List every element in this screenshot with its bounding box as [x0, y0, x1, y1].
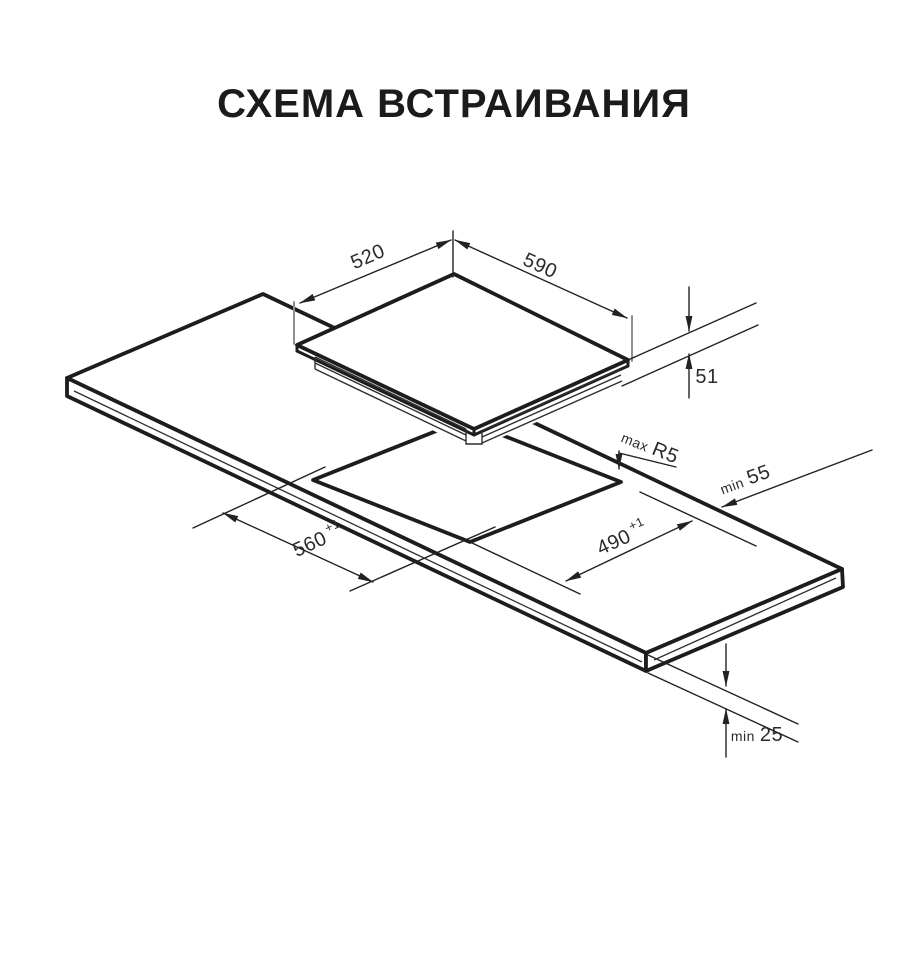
ext-51-bottom [622, 325, 758, 386]
dim-51-value: 51 [695, 366, 718, 388]
dim-25-value: 25 [760, 724, 783, 746]
ext-25-top [648, 655, 798, 724]
installation-scheme-page: СХЕМА ВСТРАИВАНИЯ [0, 0, 908, 960]
dim-label-min-25: min25 [731, 725, 783, 745]
dim-25-prefix: min [731, 728, 755, 744]
ext-51-top [628, 303, 756, 360]
dim-label-51: 51 [695, 367, 718, 387]
